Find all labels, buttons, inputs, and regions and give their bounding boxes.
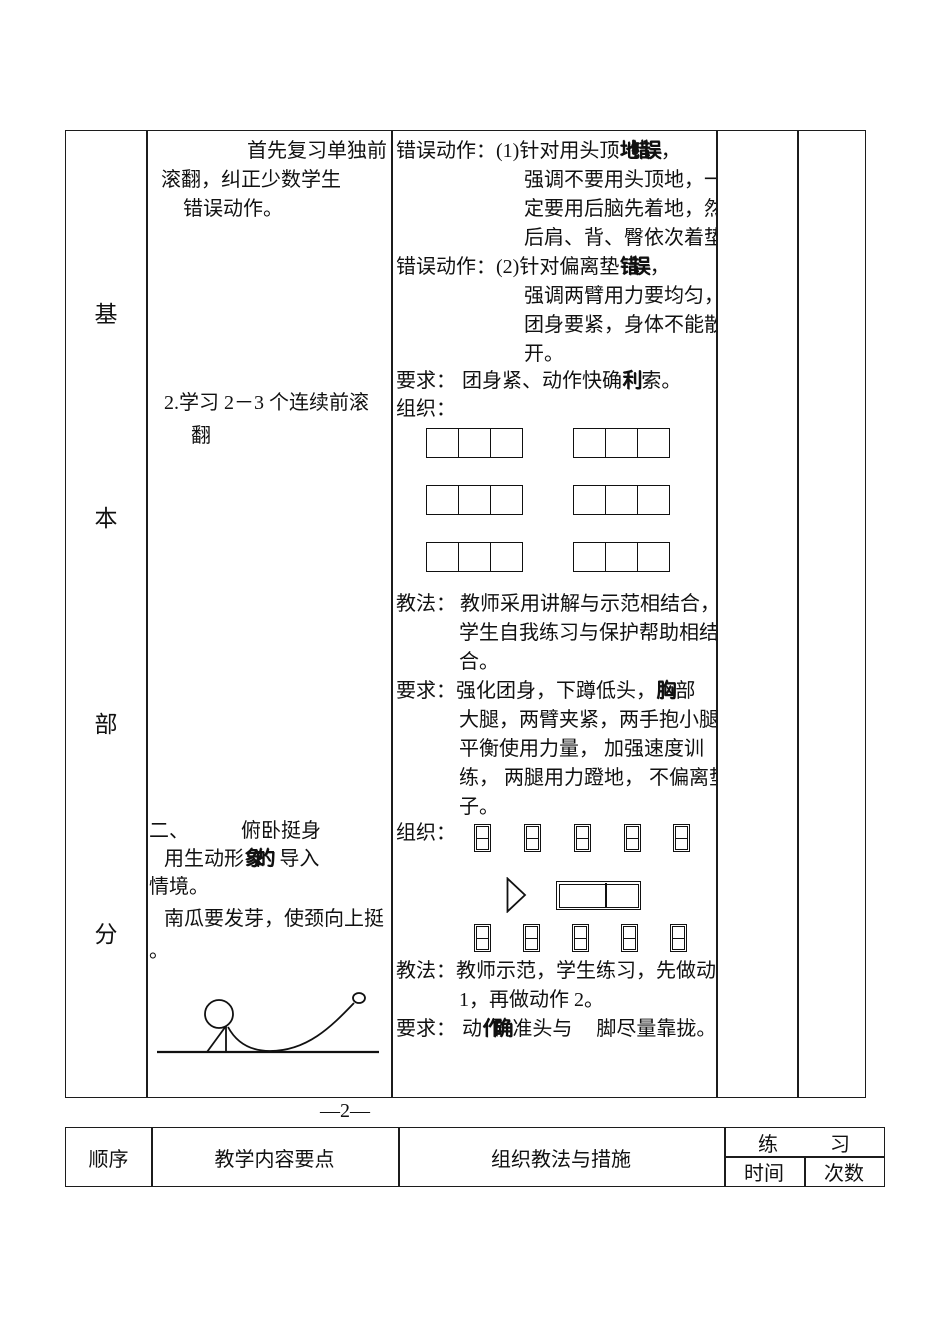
error-action-1-text: 定要用后脑先着地，然	[524, 197, 716, 221]
header-cell-order: 顺序	[66, 1128, 151, 1186]
text: (2)针对偏离垫	[496, 256, 619, 278]
error-action-2-text: 开。	[524, 342, 564, 366]
text: 强化团身，下蹲低头，	[456, 680, 656, 702]
methods-column: 错误动作：(1)针对用头顶地错误， 强调不要用头顶地，一 定要用后脑先着地，然 …	[392, 131, 716, 1097]
intro-text: 用生动形象的导入	[164, 847, 319, 871]
page-number: —2—	[300, 1100, 390, 1123]
garbled-text: 作确	[482, 1017, 512, 1041]
header-cell-time: 时间	[724, 1156, 804, 1186]
student-mat-square	[621, 924, 638, 952]
error-action-2: 错误动作：(2)针对偏离垫错误，	[396, 255, 670, 279]
student-mat-square	[574, 824, 591, 852]
garbled-text: 利	[622, 369, 641, 393]
formation-rect	[426, 428, 523, 458]
section2-number: 二、	[149, 820, 189, 842]
student-mat-square	[673, 824, 690, 852]
student-mat-square	[572, 924, 589, 952]
demonstration-mat	[556, 881, 641, 910]
error-action-1: 错误动作：(1)针对用头顶地错误，	[396, 139, 681, 163]
text: (1)针对用头顶	[496, 140, 619, 162]
text: 部	[675, 680, 695, 702]
intro-text: 南瓜要发芽，使颈向上挺	[164, 907, 384, 931]
section2-heading: 二、 俯卧挺身	[149, 819, 321, 843]
review-text: 错误动作。	[183, 197, 283, 221]
next-page-header-table: 顺序 教学内容要点 组织教法与措施 练 习 时间 次数	[65, 1127, 885, 1187]
formation-rect	[573, 542, 670, 572]
student-mat-square	[523, 924, 540, 952]
label: 错误动作：	[396, 140, 496, 162]
stage-column: 基 本 部 分	[66, 131, 146, 1097]
teaching-method-1-text: 学生自我练习与保护帮助相结	[459, 621, 716, 645]
label: 错误动作：	[396, 256, 496, 278]
requirement-2-text: 练， 两腿用力蹬地， 不偏离垫	[459, 766, 716, 790]
student-mat-square	[670, 924, 687, 952]
header-cell-method: 组织教法与措施	[398, 1128, 724, 1186]
text: ，	[650, 256, 670, 278]
review-text: 首先复习单独前	[247, 139, 387, 163]
organization-1-label: 组织：	[396, 397, 456, 421]
learn-item-text: 翻	[191, 424, 211, 448]
error-action-1-text: 强调不要用头顶地，一	[524, 168, 716, 192]
garbled-text: 地错误	[619, 139, 660, 163]
label: 教法：	[396, 593, 456, 615]
practice-label-part: 习	[830, 1128, 850, 1157]
error-action-1-text: 后肩、背、臀依次着垫	[524, 226, 716, 250]
text: 教师采用讲解与示范相结合，	[460, 593, 716, 615]
label: 要求：	[396, 680, 456, 702]
table-divider	[716, 131, 718, 1097]
formation-rect	[426, 542, 523, 572]
stage-char: 分	[66, 915, 146, 949]
requirement-1: 要求：团身紧、动作快确利索。	[396, 369, 681, 393]
lesson-plan-main-table: 基 本 部 分 首先复习单独前 滚翻，纠正少数学生 错误动作。 2.学习 2－3…	[65, 130, 866, 1098]
error-action-2-text: 强调两臂用力要均匀，	[524, 284, 716, 308]
header-cell-content: 教学内容要点	[151, 1128, 398, 1186]
text: 教师示范，学生练习，先做动作	[456, 960, 716, 982]
teaching-method-1-text: 合。	[459, 650, 499, 674]
text: 索。	[641, 370, 681, 392]
stage-char: 部	[66, 705, 146, 739]
text: 动	[462, 1018, 482, 1040]
formation-rect	[573, 485, 670, 515]
teaching-method-2-text: 1，再做动作 2。	[459, 988, 604, 1012]
requirement-2-text: 大腿，两臂夹紧，两手抱小腿，	[459, 708, 716, 732]
stage-char: 本	[66, 499, 146, 533]
section2-title: 俯卧挺身	[241, 820, 321, 842]
text: 团身紧、动作快确	[462, 370, 622, 392]
label: 要求：	[396, 1018, 456, 1040]
teaching-content-column: 首先复习单独前 滚翻，纠正少数学生 错误动作。 2.学习 2－3 个连续前滚 翻…	[147, 131, 390, 1097]
text: 准头与	[512, 1018, 572, 1040]
garbled-text: 胸	[656, 679, 675, 703]
intro-text-part: 用生动形	[164, 848, 244, 870]
header-cell-practice: 练 习	[724, 1128, 884, 1156]
requirement-2-text: 子。	[459, 795, 499, 819]
prone-arch-stick-figure-illustration	[155, 981, 383, 1063]
teacher-triangle-marker	[506, 877, 528, 913]
student-mat-square	[474, 824, 491, 852]
label: 教法：	[396, 960, 456, 982]
intro-text: 。	[149, 939, 169, 963]
table-divider	[797, 131, 799, 1097]
learn-item-text: 2.学习 2－3 个连续前滚	[164, 391, 369, 415]
stage-char: 基	[66, 295, 146, 329]
organization-2-label: 组织：	[396, 821, 456, 845]
garbled-text: 错误	[619, 255, 649, 279]
text: ，	[661, 140, 681, 162]
label: 要求：	[396, 370, 456, 392]
requirement-3: 要求：动作确准头与脚尽量靠拢。	[396, 1017, 716, 1041]
header-cell-count: 次数	[804, 1156, 884, 1186]
error-action-2-text: 团身要紧，身体不能散	[524, 313, 716, 337]
formation-rect	[573, 428, 670, 458]
teaching-method-1: 教法：教师采用讲解与示范相结合，	[396, 592, 716, 616]
student-mat-square	[524, 824, 541, 852]
requirement-2-text: 平衡使用力量， 加强速度训	[459, 737, 704, 761]
review-text: 滚翻，纠正少数学生	[161, 168, 341, 192]
requirement-2: 要求：强化团身，下蹲低头，胸部贴	[396, 679, 716, 703]
formation-rect	[426, 485, 523, 515]
intro-text: 情境。	[149, 875, 209, 899]
intro-text-part: 导入	[279, 848, 319, 870]
text: 脚尽量靠拢。	[596, 1018, 716, 1040]
garbled-text: 象的	[244, 847, 274, 871]
practice-label-part: 练	[758, 1128, 778, 1157]
student-mat-square	[624, 824, 641, 852]
lesson-plan-page: 基 本 部 分 首先复习单独前 滚翻，纠正少数学生 错误动作。 2.学习 2－3…	[0, 0, 950, 1342]
teaching-method-2: 教法：教师示范，学生练习，先做动作	[396, 959, 716, 983]
student-mat-square	[474, 924, 491, 952]
